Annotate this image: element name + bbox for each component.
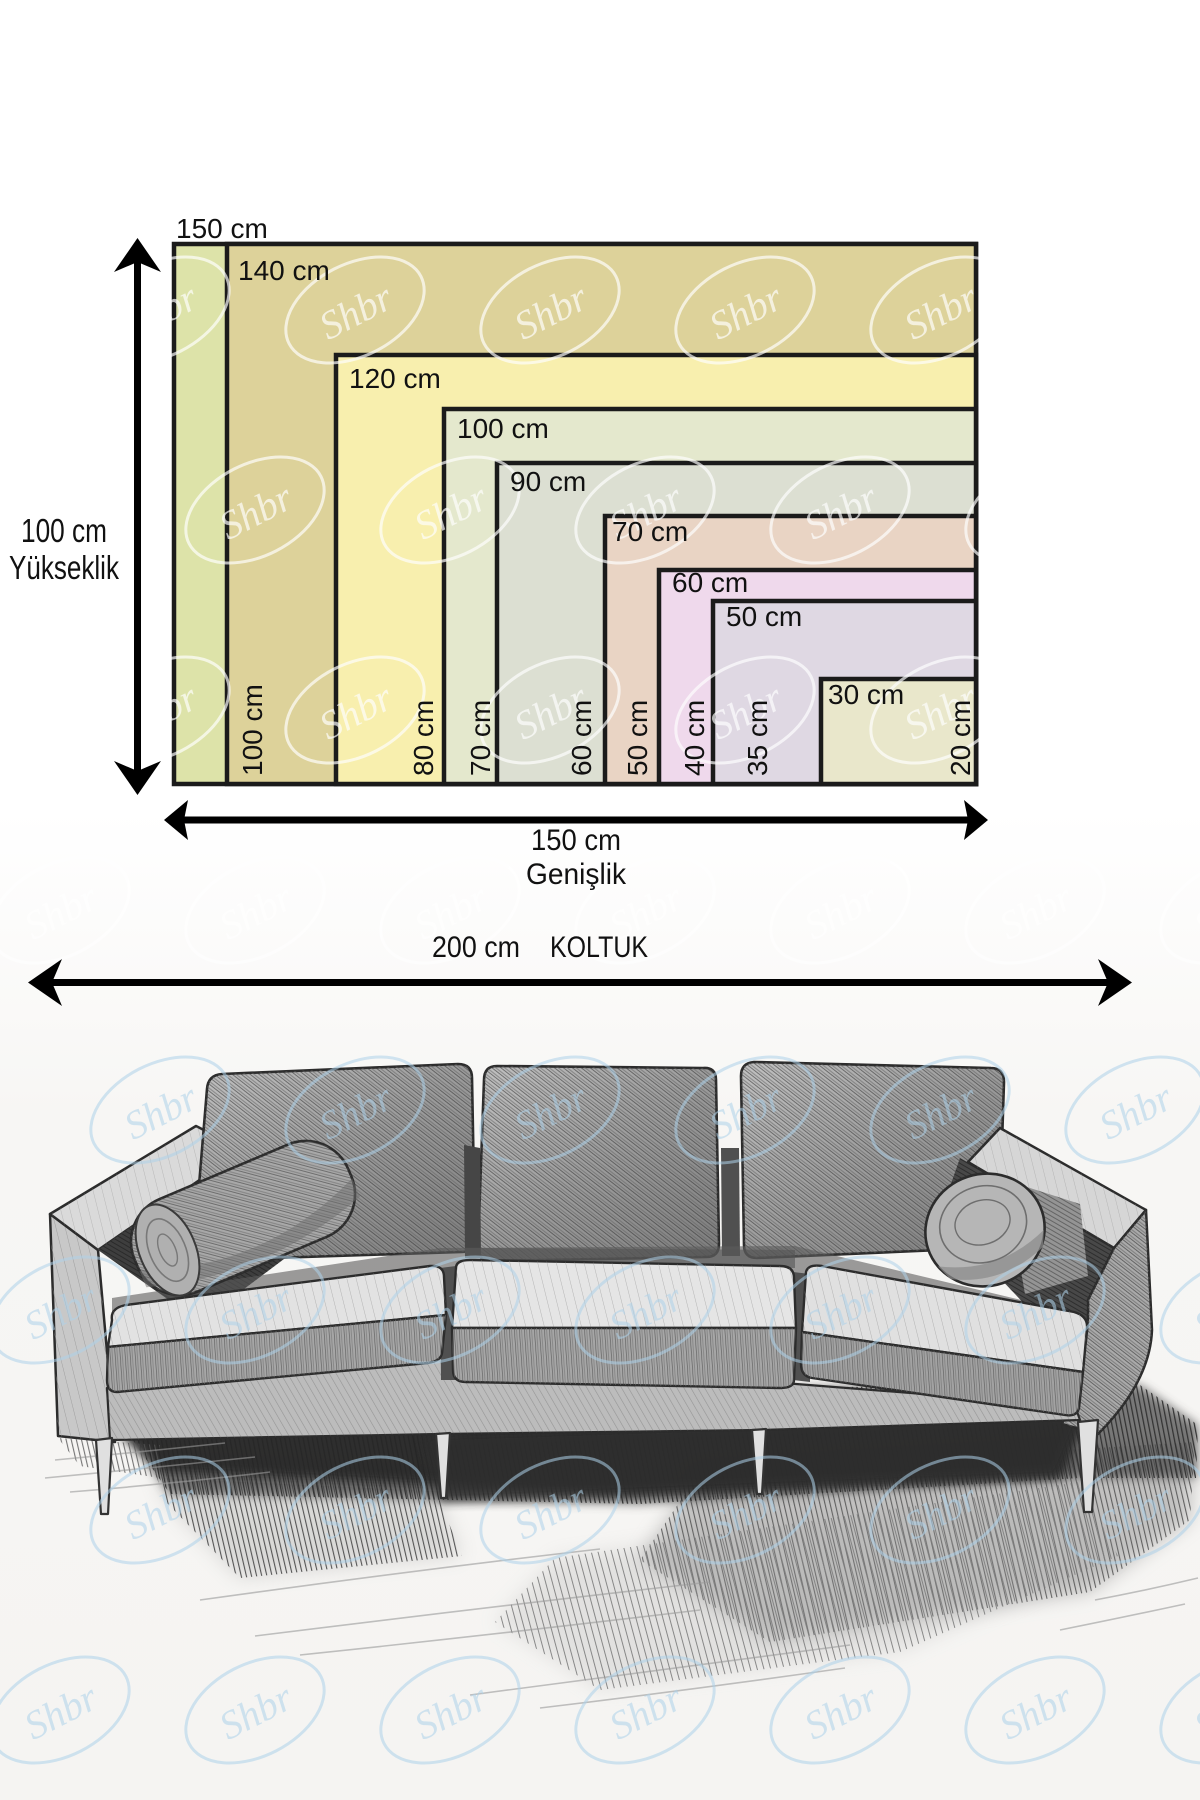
svg-text:20 cm: 20 cm [945, 700, 976, 776]
svg-text:70 cm: 70 cm [612, 516, 688, 547]
svg-text:40 cm: 40 cm [679, 700, 710, 776]
svg-text:50 cm: 50 cm [726, 601, 802, 632]
svg-text:100 cm: 100 cm [237, 684, 268, 776]
svg-text:100 cm: 100 cm [21, 512, 107, 549]
svg-text:60 cm: 60 cm [566, 700, 597, 776]
svg-text:KOLTUK: KOLTUK [550, 931, 648, 964]
svg-text:30 cm: 30 cm [828, 679, 904, 710]
svg-text:Yükseklik: Yükseklik [9, 549, 119, 586]
svg-text:Genişlik: Genişlik [526, 858, 627, 891]
svg-text:120 cm: 120 cm [349, 363, 441, 394]
svg-text:50 cm: 50 cm [622, 700, 653, 776]
svg-text:200 cm: 200 cm [432, 931, 520, 964]
svg-text:90 cm: 90 cm [510, 466, 586, 497]
svg-text:80 cm: 80 cm [408, 700, 439, 776]
svg-text:140 cm: 140 cm [238, 255, 330, 286]
svg-text:150 cm: 150 cm [176, 213, 268, 244]
svg-text:70 cm: 70 cm [465, 700, 496, 776]
svg-text:35 cm: 35 cm [742, 700, 773, 776]
svg-text:60 cm: 60 cm [672, 567, 748, 598]
svg-text:100 cm: 100 cm [457, 413, 549, 444]
svg-text:150 cm: 150 cm [531, 824, 621, 857]
